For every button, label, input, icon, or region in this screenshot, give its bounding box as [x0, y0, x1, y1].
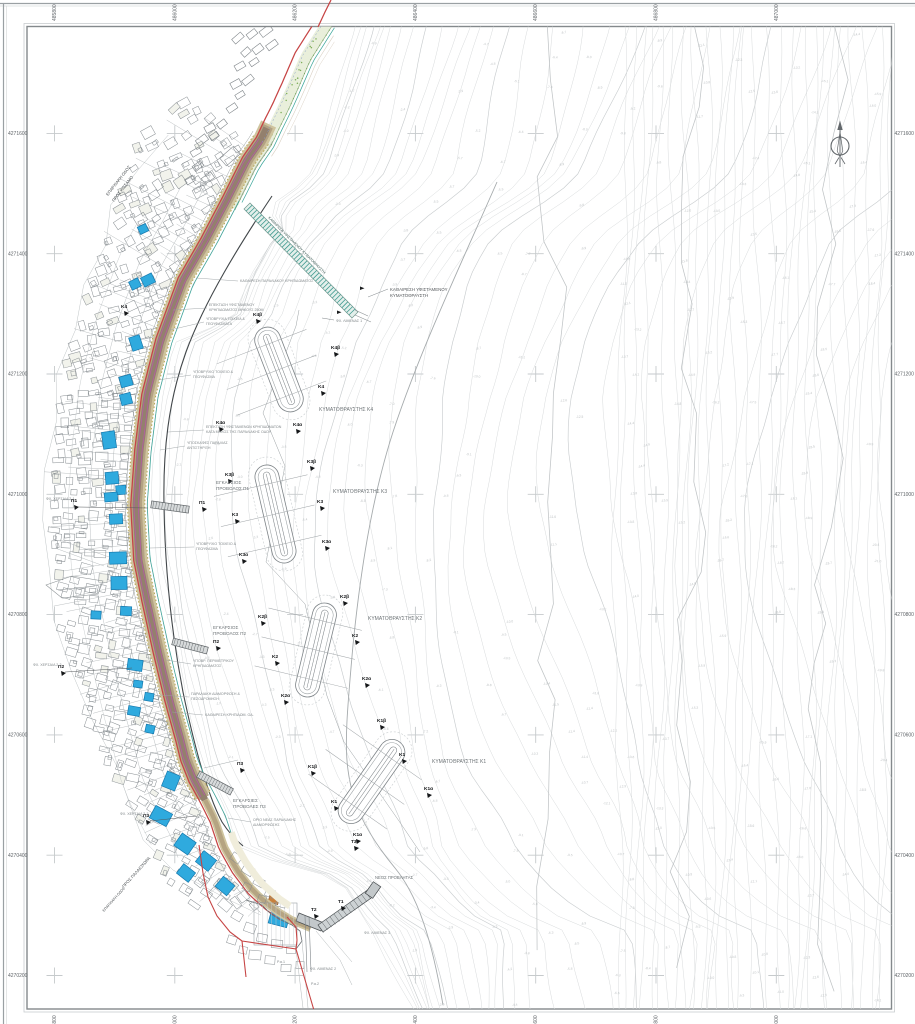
svg-text:-6.4: -6.4 [552, 55, 558, 60]
svg-text:Κ3α: Κ3α [239, 552, 248, 558]
svg-text:-8.7: -8.7 [521, 272, 527, 276]
svg-text:-11.4: -11.4 [581, 755, 588, 759]
svg-text:Τ3: Τ3 [351, 839, 357, 845]
svg-text:-17.6: -17.6 [740, 494, 748, 498]
svg-text:ΥΠΟΒΡ. ΠΕΡΙΜΕΤΡΙΚΟΥ: ΥΠΟΒΡ. ΠΕΡΙΜΕΤΡΙΚΟΥ [193, 659, 234, 663]
svg-text:-8.0: -8.0 [586, 55, 592, 59]
svg-text:-5.4: -5.4 [302, 517, 308, 522]
svg-text:-8.0: -8.0 [582, 127, 588, 132]
svg-text:ΕΠΕΚΤΑΣΗ ΥΦΙΣΤΑΜΕΝΟΥ: ΕΠΕΚΤΑΣΗ ΥΦΙΣΤΑΜΕΝΟΥ [209, 303, 255, 307]
svg-text:-17.1: -17.1 [746, 462, 754, 466]
svg-text:-10.9: -10.9 [685, 872, 693, 877]
svg-text:-19.9: -19.9 [866, 442, 874, 446]
svg-text:486000: 486000 [172, 1015, 178, 1024]
svg-text:4271400: 4271400 [8, 251, 28, 257]
svg-text:ΕΓΚΑΡΣΙΕΣ: ΕΓΚΑΡΣΙΕΣ [233, 798, 258, 803]
svg-text:-16.0: -16.0 [796, 855, 804, 859]
svg-text:ΓΕΩΥΦΑΣΜΑ: ΓΕΩΥΦΑΣΜΑ [196, 547, 219, 551]
svg-text:4270800: 4270800 [895, 612, 915, 618]
svg-text:4271600: 4271600 [8, 131, 28, 137]
svg-text:-7.0: -7.0 [389, 402, 395, 406]
svg-text:-19.8: -19.8 [877, 668, 885, 672]
svg-text:-4.8: -4.8 [490, 62, 496, 66]
svg-text:-12.0: -12.0 [684, 208, 692, 213]
svg-text:-13.2: -13.2 [793, 65, 801, 70]
svg-text:-9.7: -9.7 [501, 712, 507, 717]
svg-text:ΚΥΜΑΤΟΘΡΑΥΣΤΗΣ Κ2: ΚΥΜΑΤΟΘΡΑΥΣΤΗΣ Κ2 [368, 616, 422, 622]
svg-text:-8.8: -8.8 [486, 683, 492, 687]
svg-text:-6.5: -6.5 [456, 249, 462, 253]
svg-text:-16.0: -16.0 [869, 103, 877, 108]
svg-text:ΕΓΚΑΡΣΙΟΣ: ΕΓΚΑΡΣΙΟΣ [213, 625, 238, 630]
svg-text:-9.8: -9.8 [620, 131, 626, 135]
svg-text:-12.1: -12.1 [603, 801, 611, 806]
svg-text:-2.3: -2.3 [275, 735, 281, 739]
svg-text:-5.0: -5.0 [505, 879, 511, 884]
svg-text:-2.1: -2.1 [228, 755, 234, 759]
svg-text:Κ4β: Κ4β [253, 312, 262, 318]
svg-text:-5.7: -5.7 [457, 156, 463, 160]
svg-text:ΚΥΜΑΤΟΘΡΑΥΣΤΗΣ Κ4: ΚΥΜΑΤΟΘΡΑΥΣΤΗΣ Κ4 [319, 407, 373, 413]
svg-text:-1.0: -1.0 [343, 129, 349, 133]
svg-text:-6.3: -6.3 [357, 463, 363, 467]
svg-text:-8.4: -8.4 [645, 966, 651, 970]
svg-text:ΥΠΟΒΡΥΧΙΟ ΤΟΙΧΕΙΟ &: ΥΠΟΒΡΥΧΙΟ ΤΟΙΧΕΙΟ & [193, 370, 234, 374]
svg-text:-21.0: -21.0 [874, 559, 882, 563]
svg-text:-8.3: -8.3 [436, 684, 442, 688]
svg-text:-10.0: -10.0 [707, 976, 715, 980]
svg-text:-6.5: -6.5 [497, 251, 503, 256]
svg-text:-4.3: -4.3 [492, 924, 498, 929]
svg-text:-7.7: -7.7 [525, 252, 531, 256]
svg-text:-7.8: -7.8 [513, 849, 519, 853]
svg-text:ΠΑΡΑΛΙΑΚΗ ΔΙΑΜΟΡΦΩΣΗ &: ΠΑΡΑΛΙΑΚΗ ΔΙΑΜΟΡΦΩΣΗ & [191, 692, 240, 696]
svg-text:-3.3: -3.3 [269, 687, 275, 692]
svg-text:486600: 486600 [533, 4, 539, 21]
svg-text:Κ1α: Κ1α [353, 832, 362, 838]
svg-text:-18.2: -18.2 [770, 544, 778, 549]
svg-text:-17.7: -17.7 [828, 282, 836, 286]
svg-text:Κ4: Κ4 [318, 384, 324, 390]
svg-text:Κ3β: Κ3β [225, 472, 234, 478]
svg-text:-3.3: -3.3 [261, 703, 267, 707]
svg-text:-15.9: -15.9 [719, 634, 727, 638]
svg-text:-15.1: -15.1 [803, 161, 811, 165]
svg-text:-15.9: -15.9 [759, 740, 767, 745]
svg-text:Κ1β: Κ1β [308, 764, 317, 770]
svg-text:ΚΡΗΠΙΔΩΜΑΤΟΣ ΜΗΚΟΥΣ 250Μ: ΚΡΗΠΙΔΩΜΑΤΟΣ ΜΗΚΟΥΣ 250Μ [209, 308, 264, 312]
svg-text:-1.5: -1.5 [264, 835, 270, 839]
svg-text:-2.2: -2.2 [389, 903, 395, 907]
svg-text:-6.3: -6.3 [548, 931, 554, 935]
svg-text:-2.4: -2.4 [223, 612, 229, 616]
svg-text:4270400: 4270400 [8, 853, 28, 859]
svg-text:Κ3α: Κ3α [322, 539, 331, 545]
svg-text:ΚΑΘΑΙΡΕΣΗ ΚΡΗΠΙΔΩΜ. ΟΔ.: ΚΑΘΑΙΡΕΣΗ ΚΡΗΠΙΔΩΜ. ΟΔ. [205, 713, 254, 717]
svg-text:-13.9: -13.9 [635, 683, 643, 687]
svg-text:-5.8: -5.8 [567, 967, 573, 971]
svg-text:-14.1: -14.1 [811, 110, 819, 115]
svg-text:-10.0: -10.0 [473, 374, 481, 379]
svg-text:4270600: 4270600 [8, 733, 28, 739]
svg-text:486000: 486000 [172, 4, 178, 21]
svg-text:4270600: 4270600 [895, 733, 915, 739]
svg-text:-4.4: -4.4 [512, 1003, 518, 1007]
svg-text:-16.6: -16.6 [799, 826, 807, 831]
svg-text:-6.0: -6.0 [347, 422, 353, 427]
svg-text:-1.0: -1.0 [285, 852, 291, 856]
svg-text:-9.1: -9.1 [466, 452, 472, 456]
svg-text:-12.4: -12.4 [752, 156, 760, 160]
svg-text:-18.4: -18.4 [868, 281, 876, 286]
svg-text:-14.9: -14.9 [688, 373, 696, 377]
svg-text:-9.5: -9.5 [695, 924, 701, 929]
svg-text:-3.7: -3.7 [400, 257, 406, 262]
svg-text:Κ2: Κ2 [272, 654, 278, 660]
svg-text:-7.8: -7.8 [629, 906, 635, 910]
svg-text:486200: 486200 [293, 4, 299, 21]
svg-text:-13.7: -13.7 [662, 737, 670, 741]
svg-text:-13.5: -13.5 [708, 826, 716, 830]
svg-text:-13.4: -13.4 [683, 280, 691, 284]
svg-text:Κ4β: Κ4β [331, 345, 340, 351]
svg-text:ΠΡΟΒΟΛΟΣ Π2: ΠΡΟΒΟΛΟΣ Π2 [213, 631, 246, 636]
svg-text:ΕΓΚΑΡΣΙΟΣ: ΕΓΚΑΡΣΙΟΣ [216, 480, 241, 485]
svg-text:-11.0: -11.0 [777, 990, 784, 994]
svg-text:Π1: Π1 [199, 500, 205, 506]
svg-text:-16.1: -16.1 [782, 276, 790, 280]
svg-text:486400: 486400 [413, 1015, 419, 1024]
svg-text:-13.6: -13.6 [627, 755, 635, 759]
svg-text:-9.5: -9.5 [501, 633, 507, 637]
svg-text:-12.7: -12.7 [687, 307, 695, 312]
svg-text:ΥΠΟΒΡΥΧΙΟ ΤΟΙΧΕΙΟ &: ΥΠΟΒΡΥΧΙΟ ΤΟΙΧΕΙΟ & [196, 542, 237, 546]
svg-text:-15.9: -15.9 [874, 92, 882, 96]
svg-text:Π3: Π3 [237, 761, 243, 767]
svg-text:Κ1: Κ1 [399, 752, 405, 758]
svg-text:-6.8: -6.8 [432, 799, 438, 803]
svg-text:-16.7: -16.7 [778, 321, 786, 325]
svg-text:ΑΝΤΙΣΤΗΡΙΞΗ: ΑΝΤΙΣΤΗΡΙΞΗ [187, 446, 211, 450]
svg-text:ΦΧ. ΧΕΡΣΑΙΑ 2-1: ΦΧ. ΧΕΡΣΑΙΑ 2-1 [46, 497, 74, 501]
svg-text:-18.9: -18.9 [805, 516, 813, 520]
svg-text:Κ1α: Κ1α [424, 786, 433, 792]
svg-text:-5.5: -5.5 [433, 199, 439, 204]
svg-text:-17.1: -17.1 [805, 734, 813, 739]
svg-text:-10.7: -10.7 [617, 852, 625, 856]
svg-text:-7.4: -7.4 [547, 85, 553, 89]
svg-text:Κ2α: Κ2α [362, 676, 371, 682]
svg-text:-10.6: -10.6 [704, 897, 712, 901]
svg-text:486200: 486200 [293, 1015, 299, 1024]
svg-text:-13.2: -13.2 [599, 607, 607, 611]
svg-text:-10.4: -10.4 [543, 681, 551, 686]
svg-text:ΥΠΟΒΡΥΧΙΑ ΤΟΙΧΕΙΑ &: ΥΠΟΒΡΥΧΙΑ ΤΟΙΧΕΙΑ & [206, 317, 245, 321]
svg-text:-10.6: -10.6 [623, 257, 631, 261]
svg-text:-3.6: -3.6 [281, 445, 287, 449]
svg-text:-3.3: -3.3 [259, 655, 265, 659]
svg-text:-3.8: -3.8 [524, 951, 530, 955]
svg-text:ΚΥΜΑΤΟΘΡΑΥΣΤΗΣ Κ1: ΚΥΜΑΤΟΘΡΑΥΣΤΗΣ Κ1 [432, 759, 486, 765]
svg-text:487000: 487000 [774, 4, 780, 21]
svg-text:-6.3: -6.3 [615, 973, 621, 977]
svg-text:ΚΥΜΑΤΟΘΡΑΥΣΤΗΣ Κ3: ΚΥΜΑΤΟΘΡΑΥΣΤΗΣ Κ3 [333, 489, 387, 495]
svg-text:-5.5: -5.5 [436, 231, 442, 235]
svg-text:-2.1: -2.1 [176, 462, 182, 467]
svg-text:-15.9: -15.9 [698, 663, 706, 668]
svg-text:ΝΕΟΣ ΠΡΟΒΛΗΤΑΣ: ΝΕΟΣ ΠΡΟΒΛΗΤΑΣ [375, 875, 414, 880]
svg-text:-6.7: -6.7 [500, 160, 506, 164]
svg-text:-9.1: -9.1 [518, 833, 524, 837]
svg-text:-15.6: -15.6 [747, 824, 754, 828]
svg-text:ΠΡΟΒΟΛΕΣ Π3: ΠΡΟΒΟΛΕΣ Π3 [233, 804, 266, 809]
svg-text:Κ3: Κ3 [232, 512, 238, 518]
svg-text:ΦΧ. ΧΕΡΣΑΙΑ 2-2: ΦΧ. ΧΕΡΣΑΙΑ 2-2 [33, 663, 61, 667]
svg-text:4271200: 4271200 [895, 372, 915, 378]
svg-text:-5.9: -5.9 [498, 187, 504, 192]
svg-text:-9.8: -9.8 [656, 160, 662, 165]
svg-text:-2.7: -2.7 [252, 632, 258, 636]
svg-text:ΠΡΟΒΟΛΟΣ Π1: ΠΡΟΒΟΛΟΣ Π1 [216, 486, 249, 491]
svg-text:-6.5: -6.5 [360, 499, 366, 503]
svg-text:-18.5: -18.5 [859, 788, 866, 792]
svg-text:-12.5: -12.5 [576, 415, 583, 419]
svg-text:-10.8: -10.8 [729, 955, 737, 959]
svg-text:-5.8: -5.8 [532, 902, 538, 906]
svg-text:Κ1β: Κ1β [377, 718, 386, 724]
svg-text:-9.5: -9.5 [567, 853, 573, 857]
svg-text:-4.8: -4.8 [315, 475, 321, 479]
svg-text:-12.3: -12.3 [735, 58, 742, 62]
svg-text:Κ2α: Κ2α [281, 693, 290, 699]
svg-text:-11.7: -11.7 [696, 114, 704, 119]
svg-text:-20.4: -20.4 [872, 543, 880, 547]
svg-text:-12.3: -12.3 [803, 955, 811, 960]
svg-text:ΓΕΩΥΦΑΣΜΑ: ΓΕΩΥΦΑΣΜΑ [193, 375, 216, 379]
svg-text:-15.1: -15.1 [821, 79, 829, 83]
svg-text:Κ3β: Κ3β [307, 459, 316, 465]
svg-text:ΚΑΘΑΙΡΕΣΗ ΠΑΡΑΛΙΑΚΟΥ ΚΡΗΠΙΔΩΜΑ: ΚΑΘΑΙΡΕΣΗ ΠΑΡΑΛΙΑΚΟΥ ΚΡΗΠΙΔΩΜΑΤΟΣ [240, 279, 314, 283]
svg-text:-6.9: -6.9 [370, 558, 376, 563]
svg-text:-9.8: -9.8 [443, 494, 449, 498]
svg-text:ΦΧ. ΛΙΜΕΝΑΣ 3: ΦΧ. ΛΙΜΕΝΑΣ 3 [364, 931, 390, 935]
svg-text:4271400: 4271400 [895, 251, 915, 257]
svg-text:4271000: 4271000 [895, 492, 915, 498]
svg-text:-13.3: -13.3 [656, 806, 664, 811]
svg-text:ΠΕΖΟΔΡΟΜΗΣΗ: ΠΕΖΟΔΡΟΜΗΣΗ [191, 697, 219, 701]
svg-text:-8.1: -8.1 [453, 630, 459, 634]
svg-text:-2.5: -2.5 [237, 377, 243, 381]
svg-text:486800: 486800 [654, 1015, 660, 1024]
svg-text:Ρ.α.1: Ρ.α.1 [277, 960, 285, 964]
svg-text:-6.4: -6.4 [518, 130, 524, 134]
svg-text:-14.1: -14.1 [874, 998, 882, 1003]
svg-text:-13.8: -13.8 [627, 520, 635, 524]
svg-text:-1.2: -1.2 [344, 105, 350, 109]
svg-text:4270200: 4270200 [895, 973, 915, 979]
svg-text:ΓΕΩΥΦΑΣΜΑΤΑ: ΓΕΩΥΦΑΣΜΑΤΑ [206, 322, 233, 326]
svg-text:4270200: 4270200 [8, 973, 28, 979]
svg-text:-11.5: -11.5 [552, 702, 560, 707]
svg-text:-11.2: -11.2 [518, 355, 525, 359]
svg-text:Ρ.α.2: Ρ.α.2 [311, 982, 319, 986]
svg-text:-14.1: -14.1 [632, 372, 640, 377]
svg-text:-5.2: -5.2 [341, 346, 347, 350]
svg-text:-7.5: -7.5 [620, 949, 626, 953]
svg-text:4271200: 4271200 [8, 372, 28, 378]
svg-text:Κ4α: Κ4α [293, 422, 302, 428]
svg-text:-16.2: -16.2 [712, 400, 720, 405]
svg-text:-14.8: -14.8 [674, 402, 681, 406]
svg-text:-10.5: -10.5 [503, 656, 511, 660]
svg-text:-8.9: -8.9 [597, 85, 603, 90]
svg-text:-18.3: -18.3 [788, 587, 796, 591]
svg-text:-15.3: -15.3 [740, 320, 748, 324]
svg-text:ΥΠΟΣΚΑΦΕΣ ΠΑΡΑΛΙΑΣ: ΥΠΟΣΚΑΦΕΣ ΠΑΡΑΛΙΑΣ [187, 441, 228, 445]
svg-text:Τ2: Τ2 [311, 907, 317, 913]
svg-text:Κ4: Κ4 [121, 304, 127, 310]
svg-text:-3.4: -3.4 [430, 905, 436, 909]
svg-text:Κ2: Κ2 [352, 633, 358, 639]
svg-text:-2.0: -2.0 [439, 1002, 445, 1007]
svg-text:ΟΡΙΟ ΝΕΑΣ ΠΑΡΑΛΙΑΚΗΣ: ΟΡΙΟ ΝΕΑΣ ΠΑΡΑΛΙΑΚΗΣ [253, 818, 297, 822]
svg-text:ΚΑΘΑΙΡΕΣΗ ΥΦΙΣΤΑΜΕΝΟΥ: ΚΑΘΑΙΡΕΣΗ ΥΦΙΣΤΑΜΕΝΟΥ [390, 287, 448, 292]
svg-text:-2.3: -2.3 [335, 202, 341, 206]
svg-text:ΚΡΗΠΙΔΩΜΑΤΟΣ: ΚΡΗΠΙΔΩΜΑΤΟΣ [193, 664, 222, 668]
svg-text:485800: 485800 [52, 4, 58, 21]
svg-text:ΦΧ. ΛΙΜΕΝΑΣ 2: ΦΧ. ΛΙΜΕΝΑΣ 2 [310, 967, 336, 971]
svg-text:485800: 485800 [52, 1015, 58, 1024]
svg-text:ΚΥΜΑΤΟΘΡΑΥΣΤΗ: ΚΥΜΑΤΟΘΡΑΥΣΤΗ [390, 293, 428, 298]
svg-text:ΦΧ. ΧΕΡΣΑΙΑ 2-3: ΦΧ. ΧΕΡΣΑΙΑ 2-3 [120, 812, 148, 816]
svg-text:-3.3: -3.3 [443, 877, 449, 881]
svg-text:-12.1: -12.1 [610, 728, 618, 733]
svg-text:-2.7: -2.7 [299, 804, 305, 808]
svg-text:-10.3: -10.3 [531, 751, 539, 756]
svg-text:ΔΙΑΜΟΡΦΩΣΗΣ: ΔΙΑΜΟΡΦΩΣΗΣ [253, 823, 280, 827]
svg-text:-15.3: -15.3 [691, 706, 699, 710]
svg-text:-9.3: -9.3 [739, 993, 745, 998]
svg-text:-7.6: -7.6 [430, 376, 436, 380]
svg-text:486400: 486400 [413, 4, 419, 21]
svg-text:-2.8: -2.8 [215, 497, 221, 501]
svg-text:-0.9: -0.9 [371, 41, 377, 45]
svg-text:Π2: Π2 [213, 639, 219, 645]
svg-text:-6.1: -6.1 [378, 688, 384, 692]
svg-text:-11.0: -11.0 [620, 282, 628, 286]
svg-text:-1.9: -1.9 [273, 303, 279, 308]
svg-text:-0.8: -0.8 [183, 417, 189, 421]
svg-text:Τ1: Τ1 [338, 899, 344, 905]
svg-text:ΕΠΕΚΤΑΣΗ ΥΦΙΣΤΑΜΕΝΩΝ ΚΡΗΠΙΔΩΜΑ: ΕΠΕΚΤΑΣΗ ΥΦΙΣΤΑΜΕΝΩΝ ΚΡΗΠΙΔΩΜΑΤΩΝ [206, 425, 282, 429]
svg-text:486600: 486600 [533, 1015, 539, 1024]
svg-text:-6.8: -6.8 [389, 635, 395, 640]
svg-text:-1.7: -1.7 [349, 89, 355, 93]
svg-text:-13.3: -13.3 [739, 182, 747, 186]
svg-text:-3.4: -3.4 [474, 900, 480, 905]
svg-text:-11.6: -11.6 [549, 515, 556, 519]
svg-text:4270400: 4270400 [895, 853, 915, 859]
svg-text:-4.7: -4.7 [329, 730, 335, 734]
svg-text:ΦΧ. ΛΙΜΕΝΑΣ 1: ΦΧ. ΛΙΜΕΝΑΣ 1 [336, 319, 362, 323]
svg-text:-2.9: -2.9 [327, 849, 333, 853]
svg-text:-5.1: -5.1 [514, 79, 520, 83]
svg-text:Κ1: Κ1 [331, 799, 337, 805]
svg-text:-10.0: -10.0 [506, 619, 514, 624]
svg-text:-13.2: -13.2 [634, 327, 642, 332]
svg-text:-20.4: -20.4 [880, 758, 888, 762]
svg-text:4271000: 4271000 [8, 492, 28, 498]
svg-text:-13.5: -13.5 [713, 209, 721, 213]
svg-text:-6.6: -6.6 [614, 991, 620, 995]
svg-text:-4.9: -4.9 [281, 567, 287, 571]
svg-text:4271600: 4271600 [895, 131, 915, 137]
svg-text:-11.8: -11.8 [592, 691, 599, 695]
svg-text:-4.7: -4.7 [483, 42, 489, 46]
svg-text:-3.0: -3.0 [237, 475, 243, 479]
svg-text:-5.7: -5.7 [449, 185, 455, 189]
svg-text:Κ2β: Κ2β [258, 614, 267, 620]
svg-text:-9.6: -9.6 [657, 84, 663, 89]
svg-text:-18.7: -18.7 [777, 560, 785, 565]
svg-text:-17.5: -17.5 [749, 400, 757, 404]
svg-text:ΚΑΤΑ ΜΗΚΟΣ ΤΗΣ ΠΑΡΑΛΙΑΚΗΣ ΟΔΟΥ: ΚΑΤΑ ΜΗΚΟΣ ΤΗΣ ΠΑΡΑΛΙΑΚΗΣ ΟΔΟΥ [206, 430, 272, 434]
svg-text:-17.6: -17.6 [867, 228, 874, 232]
svg-text:4270800: 4270800 [8, 612, 28, 618]
svg-text:486800: 486800 [654, 4, 660, 21]
svg-text:-6.7: -6.7 [366, 380, 372, 384]
svg-text:-1.8: -1.8 [366, 879, 372, 883]
svg-text:-9.2: -9.2 [630, 106, 636, 111]
svg-text:487000: 487000 [774, 1015, 780, 1024]
svg-text:Κ2β: Κ2β [340, 594, 349, 600]
svg-text:Κ3: Κ3 [317, 499, 323, 505]
svg-text:-5.2: -5.2 [475, 129, 481, 133]
svg-text:-13.7: -13.7 [621, 354, 629, 359]
svg-text:-7.3: -7.3 [382, 587, 388, 591]
